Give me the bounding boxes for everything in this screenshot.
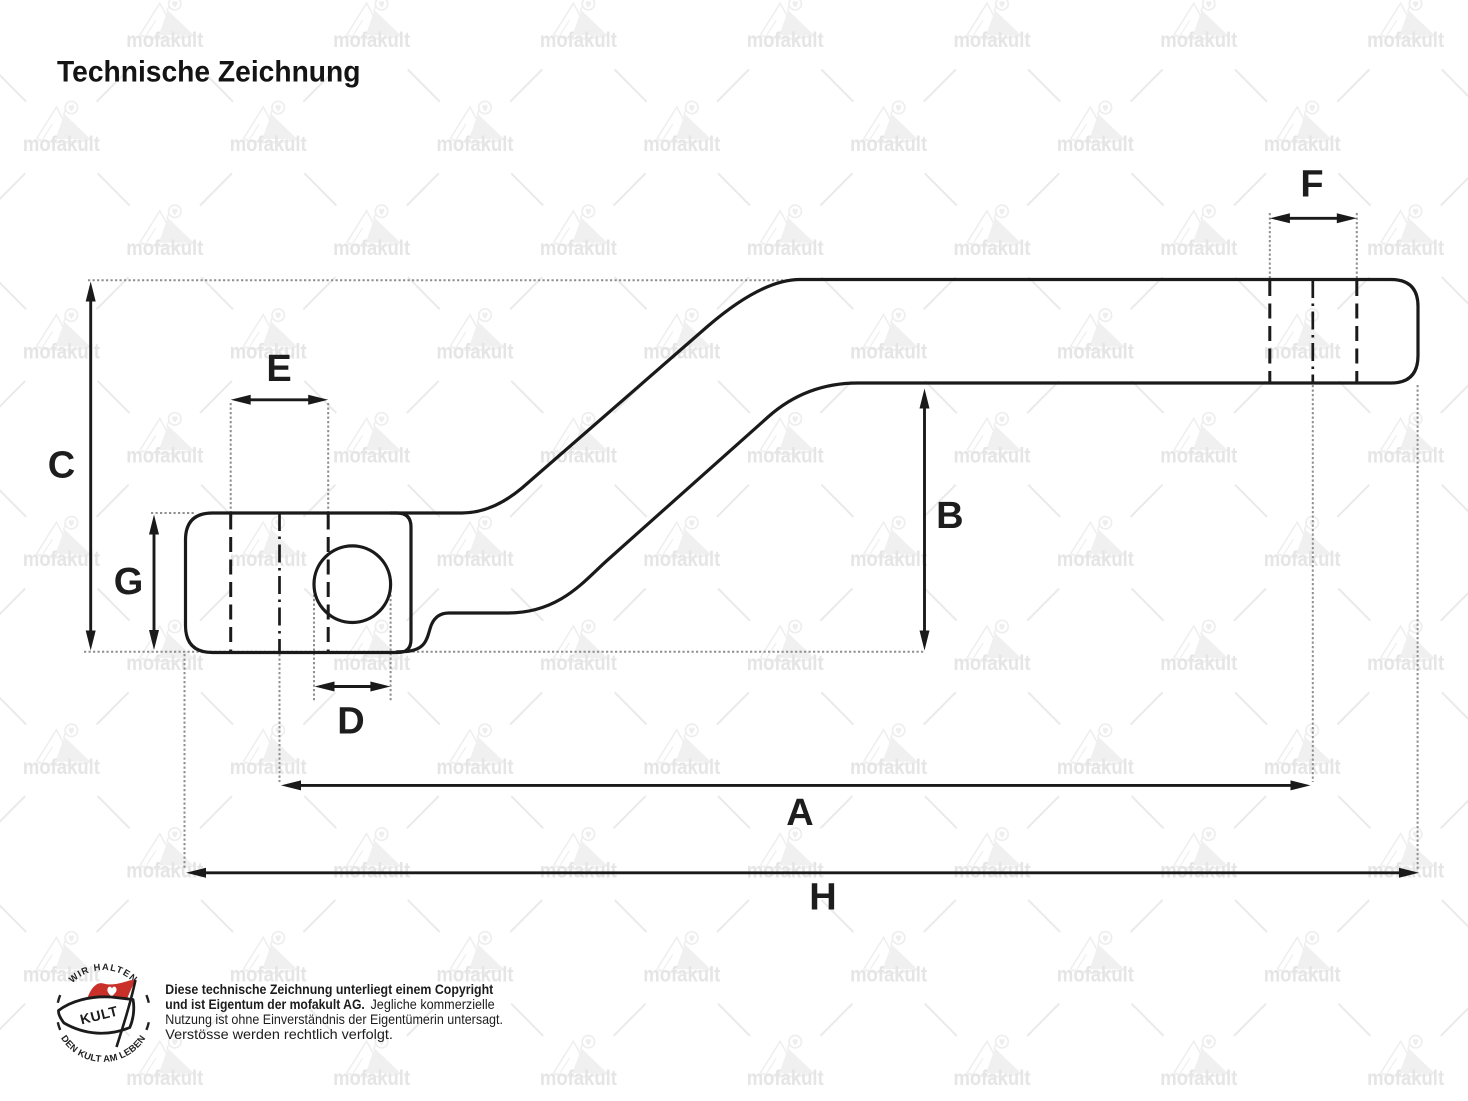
svg-text:F: F bbox=[1300, 164, 1323, 206]
svg-text:E: E bbox=[266, 348, 291, 390]
svg-text:G: G bbox=[114, 561, 144, 603]
svg-text:Diese technische Zeichnung unt: Diese technische Zeichnung unterliegt ei… bbox=[165, 982, 493, 997]
svg-text:B: B bbox=[936, 495, 963, 537]
svg-text:D: D bbox=[337, 701, 364, 743]
svg-text:C: C bbox=[48, 445, 75, 487]
svg-text:A: A bbox=[786, 792, 813, 834]
svg-text:Verstösse werden rechtlich ver: Verstösse werden rechtlich verfolgt. bbox=[165, 1027, 393, 1042]
svg-text:Nutzung ist ohne Einverständni: Nutzung ist ohne Einverständnis der Eige… bbox=[165, 1012, 503, 1027]
svg-text:und ist Eigentum der mofakult: und ist Eigentum der mofakult AG. bbox=[165, 997, 364, 1012]
svg-text:Jegliche kommerzielle: Jegliche kommerzielle bbox=[371, 997, 495, 1012]
svg-text:Technische Zeichnung: Technische Zeichnung bbox=[57, 56, 361, 89]
svg-text:H: H bbox=[809, 877, 836, 919]
